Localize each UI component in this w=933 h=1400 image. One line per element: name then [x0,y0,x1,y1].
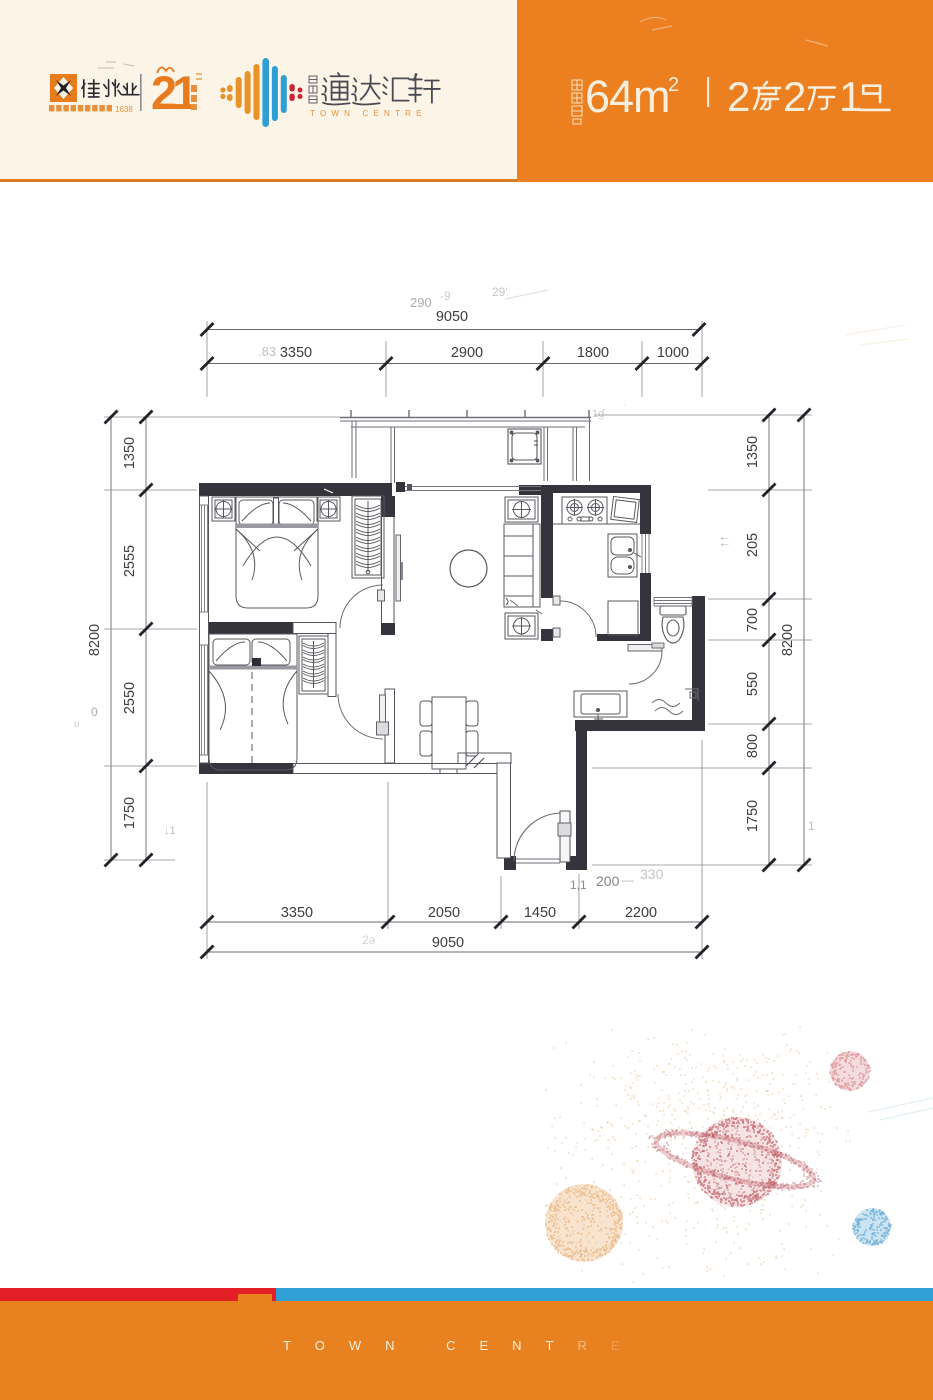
svg-text:8200: 8200 [780,624,796,656]
svg-text:↓1: ↓1 [164,825,176,837]
svg-text:200: 200 [596,873,620,889]
svg-text:9050: 9050 [436,309,468,325]
svg-text:1000: 1000 [657,345,689,361]
svg-text:1,1: 1,1 [570,878,587,892]
svg-text:9050: 9050 [432,935,464,951]
svg-text:3350: 3350 [280,345,312,361]
svg-text:1800: 1800 [577,345,609,361]
svg-text:1350: 1350 [745,436,761,468]
svg-text:800: 800 [745,734,761,758]
svg-text:700: 700 [745,608,761,632]
svg-text:—: — [622,873,634,887]
svg-text:1: 1 [808,819,815,833]
svg-text:υ: υ [74,719,79,730]
svg-text:↑↑: ↑↑ [716,535,731,548]
svg-text:290: 290 [410,295,432,310]
svg-text:2050: 2050 [428,905,460,921]
svg-text:205: 205 [745,533,761,557]
svg-text:3350: 3350 [281,905,313,921]
svg-text:1350: 1350 [122,437,138,469]
svg-text:550: 550 [745,672,761,696]
svg-text:0: 0 [91,705,98,719]
svg-text:2550: 2550 [122,682,138,714]
svg-text:330: 330 [640,866,664,882]
svg-text:2əˈ: 2əˈ [362,933,379,947]
svg-text:.83: .83 [258,344,276,359]
svg-text:ˌˋ: ˌˋ [620,403,627,415]
svg-text:1ɠ: 1ɠ [592,408,605,420]
svg-text:-9: -9 [440,289,451,303]
svg-text:1450: 1450 [524,905,556,921]
svg-text:8200: 8200 [87,624,103,656]
svg-text:2900: 2900 [451,345,483,361]
svg-text:29': 29' [492,285,508,299]
svg-text:2555: 2555 [122,545,138,577]
svg-text:1750: 1750 [122,797,138,829]
svg-text:1750: 1750 [745,800,761,832]
svg-text:2200: 2200 [625,905,657,921]
